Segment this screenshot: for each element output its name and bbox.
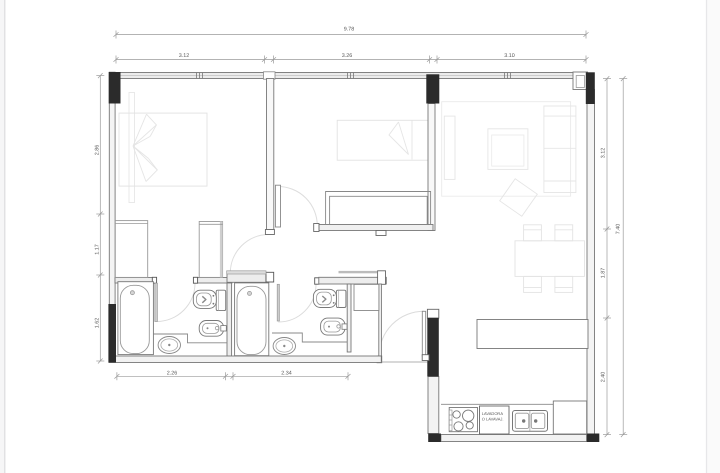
svg-text:3.10: 3.10	[504, 53, 515, 59]
svg-text:1.62: 1.62	[95, 318, 101, 329]
svg-text:2.26: 2.26	[167, 370, 178, 376]
svg-text:9.78: 9.78	[344, 27, 355, 33]
svg-text:3.26: 3.26	[342, 53, 353, 59]
svg-text:3.12: 3.12	[601, 148, 607, 159]
svg-text:2.40: 2.40	[601, 372, 607, 383]
svg-text:O LAVAVAJ.: O LAVAVAJ.	[482, 417, 504, 422]
svg-text:2.86: 2.86	[95, 145, 101, 156]
svg-text:LAVADORA: LAVADORA	[482, 411, 504, 416]
svg-text:2.34: 2.34	[281, 370, 292, 376]
svg-text:1.17: 1.17	[95, 244, 101, 255]
svg-text:1.87: 1.87	[601, 268, 607, 279]
svg-text:7.40: 7.40	[616, 224, 622, 235]
svg-text:3.12: 3.12	[179, 53, 190, 59]
